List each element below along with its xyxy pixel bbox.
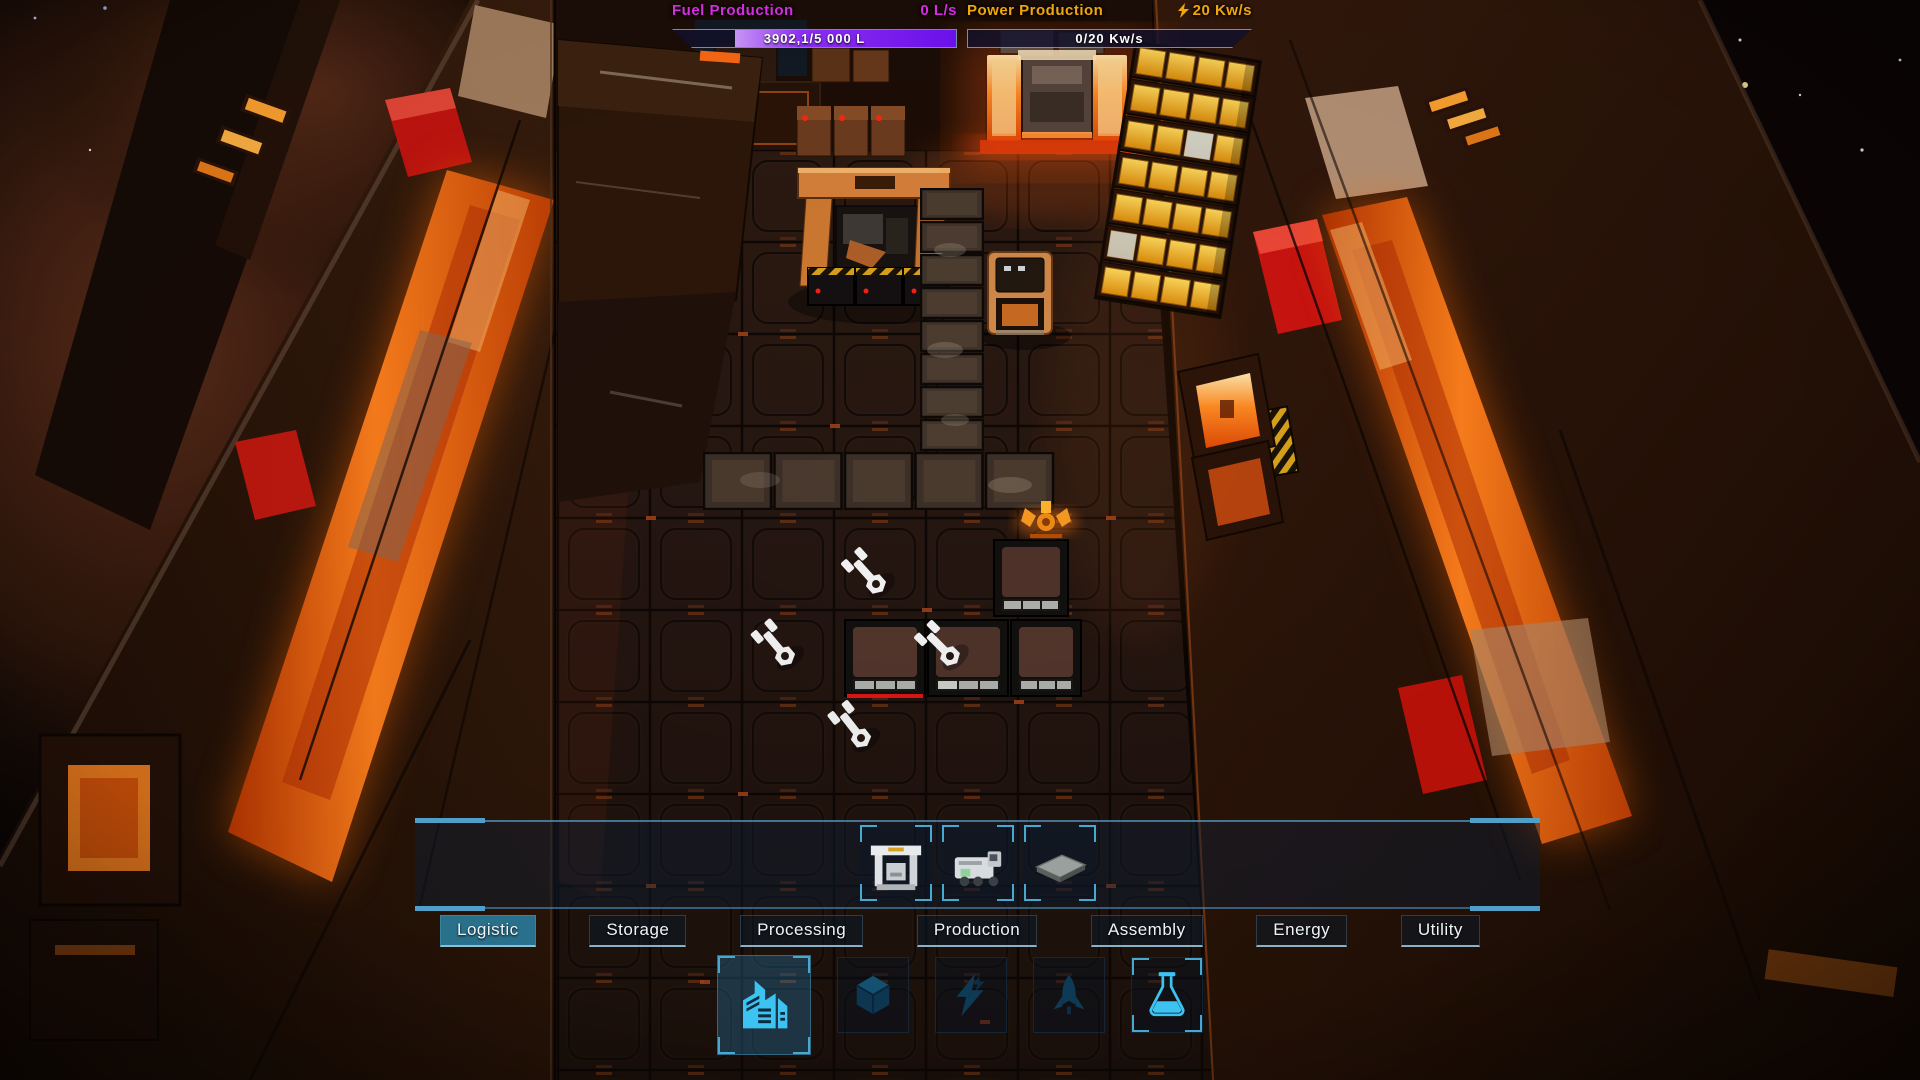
strip-cap [1470,906,1540,911]
cube-icon [850,972,896,1018]
build-category-tabs: Logistic Storage Processing Production A… [440,915,1480,947]
tab-logistic[interactable]: Logistic [440,915,536,947]
power-bar-text: 0/20 Kw/s [968,30,1251,47]
flask-icon [1142,970,1192,1020]
strip-cap [415,818,485,823]
factory-icon [736,977,792,1033]
fuel-production-group: Fuel Production 0 L/s 3902,1/5 000 L [672,2,957,48]
tab-processing[interactable]: Processing [740,915,863,947]
tab-energy[interactable]: Energy [1256,915,1347,947]
subcategory-storage[interactable] [837,957,909,1033]
strip-cap [415,906,485,911]
tab-production[interactable]: Production [917,915,1037,947]
power-rate-value: 20 Kw/s [1193,2,1252,19]
lightning-icon [948,972,994,1018]
tab-storage[interactable]: Storage [589,915,686,947]
subcategory-power[interactable] [935,957,1007,1033]
top-hud: Fuel Production 0 L/s 3902,1/5 000 L Pow… [672,2,1252,48]
module-slot-platform[interactable] [1024,825,1096,901]
module-slots [860,825,1096,901]
module-slot-hauler[interactable] [942,825,1014,901]
build-queue-strip [415,820,1540,909]
subcategory-ships[interactable] [1033,957,1105,1033]
power-production-group: Power Production 20 Kw/s 0/20 Kw/s [967,2,1252,48]
tab-utility[interactable]: Utility [1401,915,1480,947]
lightning-icon [1178,3,1189,18]
module-slot-crane[interactable] [860,825,932,901]
game-screen: Fuel Production 0 L/s 3902,1/5 000 L Pow… [0,0,1920,1080]
subcategory-factory[interactable] [717,955,811,1055]
power-production-label: Power Production [967,2,1103,19]
build-subcategory-bar [717,955,1203,1055]
subcategory-research[interactable] [1131,957,1203,1033]
fuel-bar-text: 3902,1/5 000 L [673,30,956,47]
fuel-production-label: Fuel Production [672,2,794,19]
fuel-rate-value: 0 L/s [920,2,957,19]
tab-assembly[interactable]: Assembly [1091,915,1203,947]
fuel-bar: 3902,1/5 000 L [672,29,957,48]
strip-cap [1470,818,1540,823]
power-bar: 0/20 Kw/s [967,29,1252,48]
rocket-icon [1046,972,1092,1018]
